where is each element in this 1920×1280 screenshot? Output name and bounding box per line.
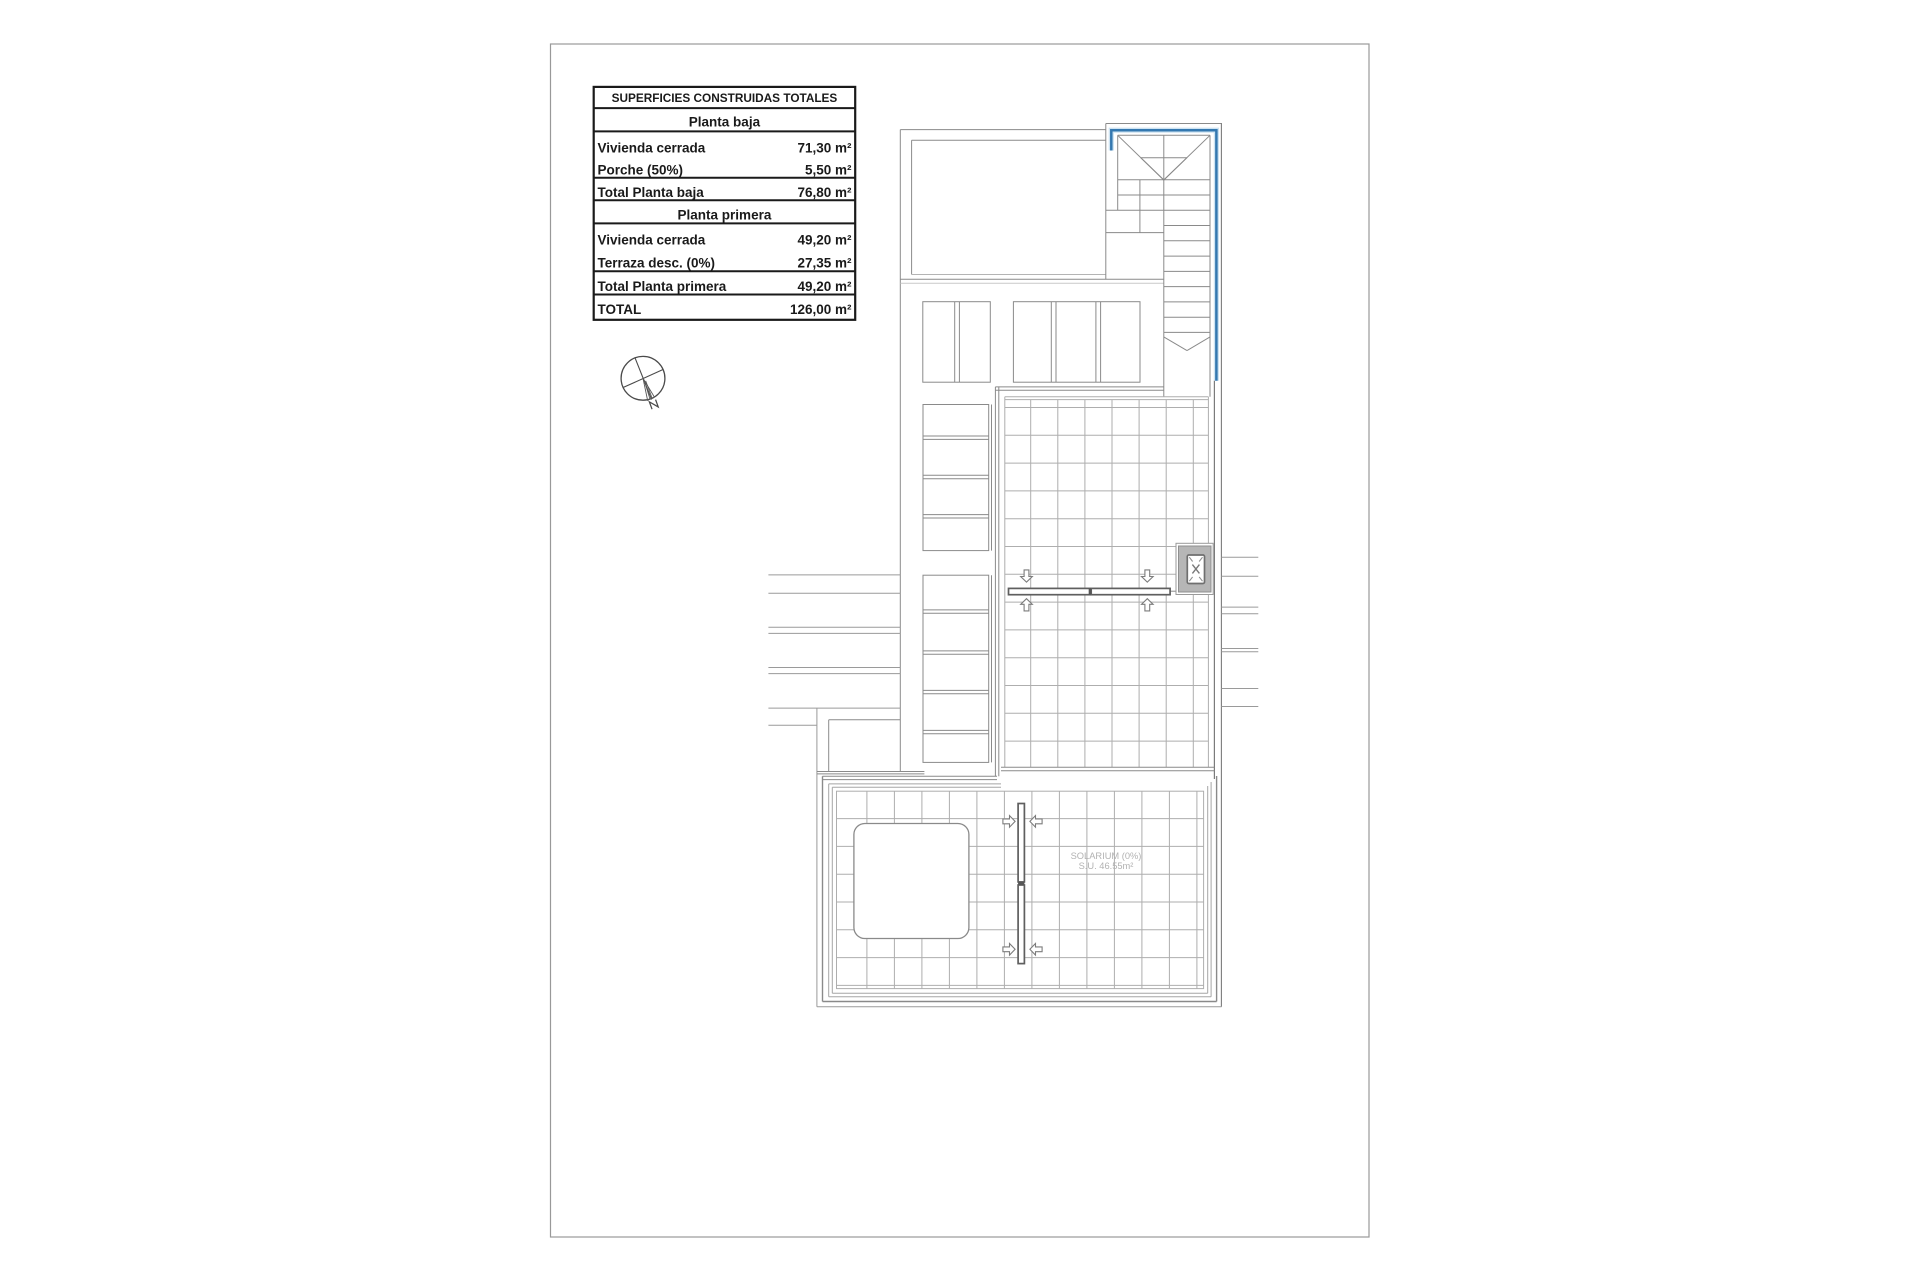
svg-text:Porche (50%): Porche (50%) <box>598 163 684 178</box>
svg-text:SOLARIUM (0%): SOLARIUM (0%) <box>1071 851 1142 861</box>
svg-text:Total Planta baja: Total Planta baja <box>598 185 705 200</box>
svg-text:76,80 m²: 76,80 m² <box>797 185 852 200</box>
svg-text:71,30 m²: 71,30 m² <box>797 141 852 156</box>
svg-text:Planta primera: Planta primera <box>678 208 772 223</box>
svg-text:Vivienda cerrada: Vivienda cerrada <box>598 233 706 248</box>
svg-text:TOTAL: TOTAL <box>598 302 642 317</box>
svg-text:49,20 m²: 49,20 m² <box>797 279 852 294</box>
svg-text:Terraza desc. (0%): Terraza desc. (0%) <box>598 256 716 271</box>
svg-text:S.U. 46.55m²: S.U. 46.55m² <box>1079 861 1134 871</box>
svg-text:Planta baja: Planta baja <box>689 115 761 130</box>
svg-text:27,35 m²: 27,35 m² <box>797 256 852 271</box>
svg-text:Vivienda cerrada: Vivienda cerrada <box>598 141 706 156</box>
svg-text:5,50 m²: 5,50 m² <box>805 163 852 178</box>
svg-text:49,20 m²: 49,20 m² <box>797 233 852 248</box>
svg-text:126,00 m²: 126,00 m² <box>790 302 852 317</box>
svg-text:SUPERFICIES CONSTRUIDAS TOTALE: SUPERFICIES CONSTRUIDAS TOTALES <box>612 91 838 105</box>
svg-text:Total Planta primera: Total Planta primera <box>598 279 727 294</box>
